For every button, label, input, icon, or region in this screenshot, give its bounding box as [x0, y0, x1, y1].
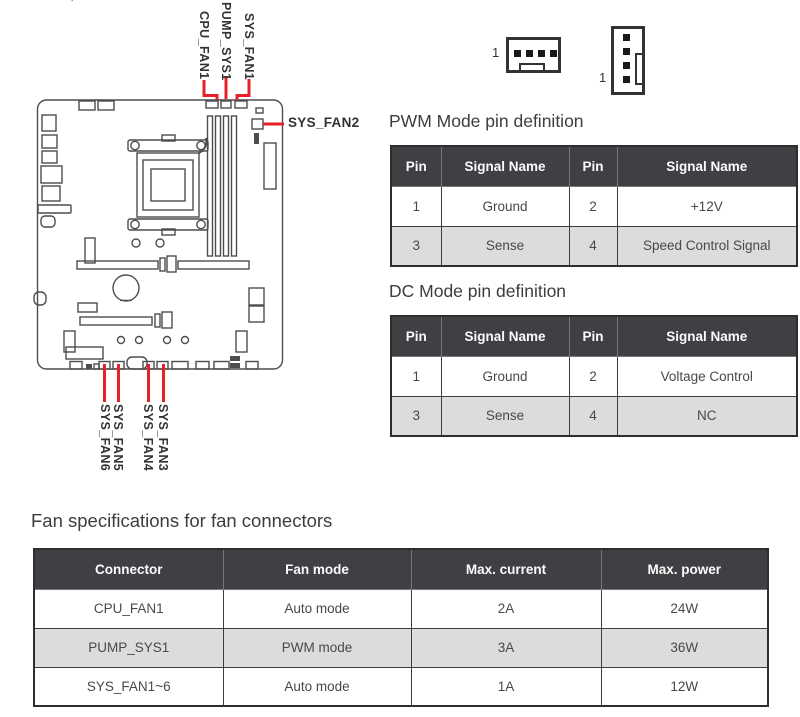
column-header: Signal Name	[441, 146, 569, 186]
column-header: Max. power	[601, 549, 768, 589]
table-cell: Ground	[441, 356, 569, 396]
table-row: 3 Sense 4 NC	[391, 396, 797, 436]
pin1-marker-vertical: 1	[599, 70, 606, 85]
column-header: Pin	[391, 146, 441, 186]
table-row: 1 Ground 2 Voltage Control	[391, 356, 797, 396]
table-cell: Ground	[441, 186, 569, 226]
table-cell: 4	[569, 226, 617, 266]
fan-connector-vertical-icon	[611, 26, 645, 95]
fan-spec-table: Connector Fan mode Max. current Max. pow…	[33, 548, 769, 707]
column-header: Pin	[569, 146, 617, 186]
table-cell: Auto mode	[223, 667, 411, 706]
top-fan-connectors	[206, 101, 247, 108]
table-cell: Auto mode	[223, 589, 411, 628]
callout-label-sys-fan5: SYS_FAN5	[111, 404, 125, 471]
dc-mode-table: Pin Signal Name Pin Signal Name 1 Ground…	[390, 315, 798, 437]
connector-key-notch	[635, 53, 644, 85]
dimm-slots	[208, 116, 237, 256]
dc-mode-heading: DC Mode pin definition	[389, 281, 566, 302]
table-cell: Sense	[441, 396, 569, 436]
column-header: Signal Name	[617, 146, 797, 186]
table-cell: 3A	[411, 628, 601, 667]
table-row: PUMP_SYS1 PWM mode 3A 36W	[34, 628, 768, 667]
column-header: Fan mode	[223, 549, 411, 589]
m2-slot-1	[77, 256, 249, 272]
column-header: Pin	[569, 316, 617, 356]
fan-connector-horizontal-icon	[506, 37, 561, 73]
pin1-marker-horizontal: 1	[492, 45, 499, 60]
table-header-row: Pin Signal Name Pin Signal Name	[391, 146, 797, 186]
table-cell: CPU_FAN1	[34, 589, 223, 628]
table-cell: 1A	[411, 667, 601, 706]
column-header: Connector	[34, 549, 223, 589]
rear-io-ports	[34, 115, 71, 305]
table-cell: NC	[617, 396, 797, 436]
manual-page: '	[0, 0, 800, 717]
table-cell: 36W	[601, 628, 768, 667]
column-header: Pin	[391, 316, 441, 356]
table-row: SYS_FAN1~6 Auto mode 1A 12W	[34, 667, 768, 706]
table-cell: 2	[569, 186, 617, 226]
table-row: 1 Ground 2 +12V	[391, 186, 797, 226]
table-cell: Speed Control Signal	[617, 226, 797, 266]
cpu-socket	[128, 135, 208, 235]
table-row: 3 Sense 4 Speed Control Signal	[391, 226, 797, 266]
motherboard-diagram	[0, 0, 390, 480]
callout-label-sys-fan2: SYS_FAN2	[288, 115, 359, 130]
callout-label-cpu-fan1: CPU_FAN1	[197, 11, 211, 80]
cmos-battery	[113, 275, 139, 301]
table-cell: 2	[569, 356, 617, 396]
callout-label-sys-fan1: SYS_FAN1	[242, 13, 256, 80]
table-cell: 1	[391, 356, 441, 396]
table-cell: SYS_FAN1~6	[34, 667, 223, 706]
table-cell: +12V	[617, 186, 797, 226]
column-header: Max. current	[411, 549, 601, 589]
callout-label-sys-fan6: SYS_FAN6	[98, 404, 112, 471]
column-header: Signal Name	[441, 316, 569, 356]
table-header-row: Connector Fan mode Max. current Max. pow…	[34, 549, 768, 589]
table-cell: PUMP_SYS1	[34, 628, 223, 667]
pwm-mode-heading: PWM Mode pin definition	[389, 111, 584, 132]
table-cell: PWM mode	[223, 628, 411, 667]
table-cell: Sense	[441, 226, 569, 266]
cpu-fan1-callout-line	[204, 80, 217, 100]
table-cell: 3	[391, 396, 441, 436]
m2-slot-2	[80, 312, 172, 328]
callout-label-sys-fan4: SYS_FAN4	[141, 404, 155, 471]
pwm-mode-table: Pin Signal Name Pin Signal Name 1 Ground…	[390, 145, 798, 267]
sys-fan1-callout-line	[237, 79, 249, 100]
table-cell: 4	[569, 396, 617, 436]
table-cell: Voltage Control	[617, 356, 797, 396]
connector-key-notch	[519, 63, 545, 72]
sys-fan2-connector	[252, 119, 263, 129]
table-header-row: Pin Signal Name Pin Signal Name	[391, 316, 797, 356]
callout-label-sys-fan3: SYS_FAN3	[156, 404, 170, 471]
table-cell: 24W	[601, 589, 768, 628]
table-cell: 12W	[601, 667, 768, 706]
board-outline-group	[34, 100, 283, 369]
table-cell: 2A	[411, 589, 601, 628]
table-row: CPU_FAN1 Auto mode 2A 24W	[34, 589, 768, 628]
table-cell: 3	[391, 226, 441, 266]
callout-label-pump-sys1: PUMP_SYS1	[219, 2, 233, 81]
table-cell: 1	[391, 186, 441, 226]
fan-spec-heading: Fan specifications for fan connectors	[31, 510, 332, 532]
callout-lines	[105, 76, 285, 402]
column-header: Signal Name	[617, 316, 797, 356]
